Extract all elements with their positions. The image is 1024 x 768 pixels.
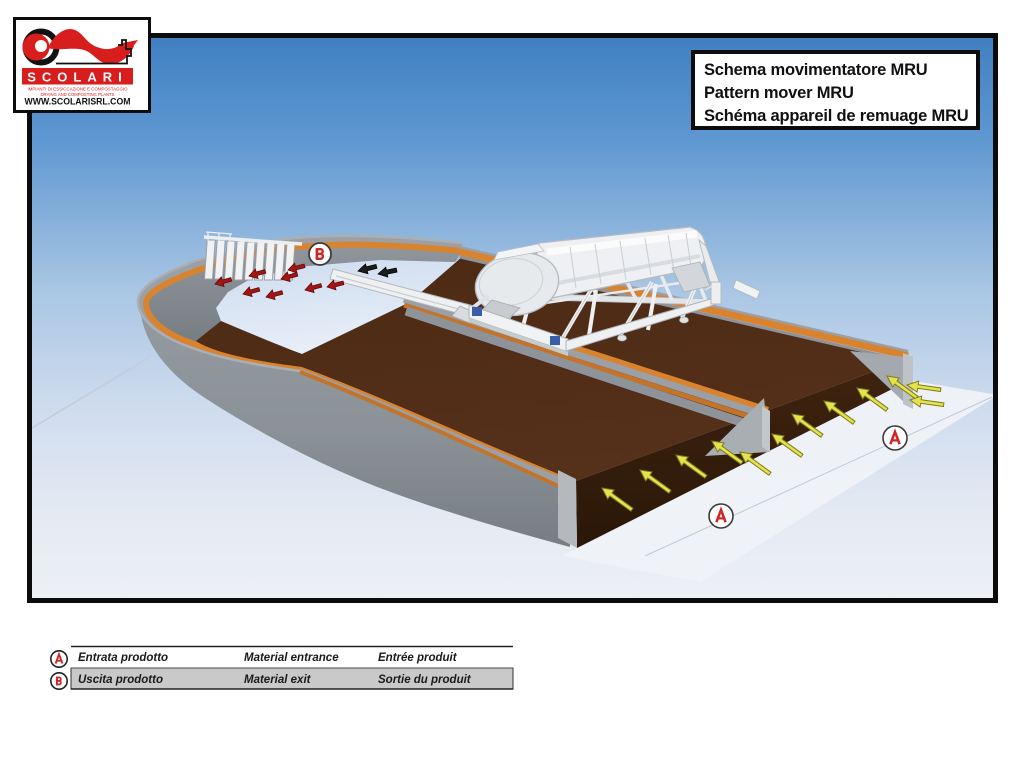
svg-text:WWW.SCOLARISRL.COM: WWW.SCOLARISRL.COM bbox=[25, 97, 131, 107]
svg-text:Entrée produit: Entrée produit bbox=[378, 652, 458, 664]
svg-text:IMPIANTI DI ESSICCAZIONE E COM: IMPIANTI DI ESSICCAZIONE E COMPOSTAGGIO bbox=[28, 87, 129, 92]
svg-text:Entrata prodotto: Entrata prodotto bbox=[78, 652, 168, 664]
svg-text:SCOLARI: SCOLARI bbox=[27, 70, 128, 85]
svg-text:Uscita prodotto: Uscita prodotto bbox=[78, 674, 163, 686]
svg-text:Sortie du produit: Sortie du produit bbox=[378, 674, 472, 686]
svg-text:Material exit: Material exit bbox=[244, 674, 312, 686]
svg-text:Material entrance: Material entrance bbox=[244, 652, 339, 664]
